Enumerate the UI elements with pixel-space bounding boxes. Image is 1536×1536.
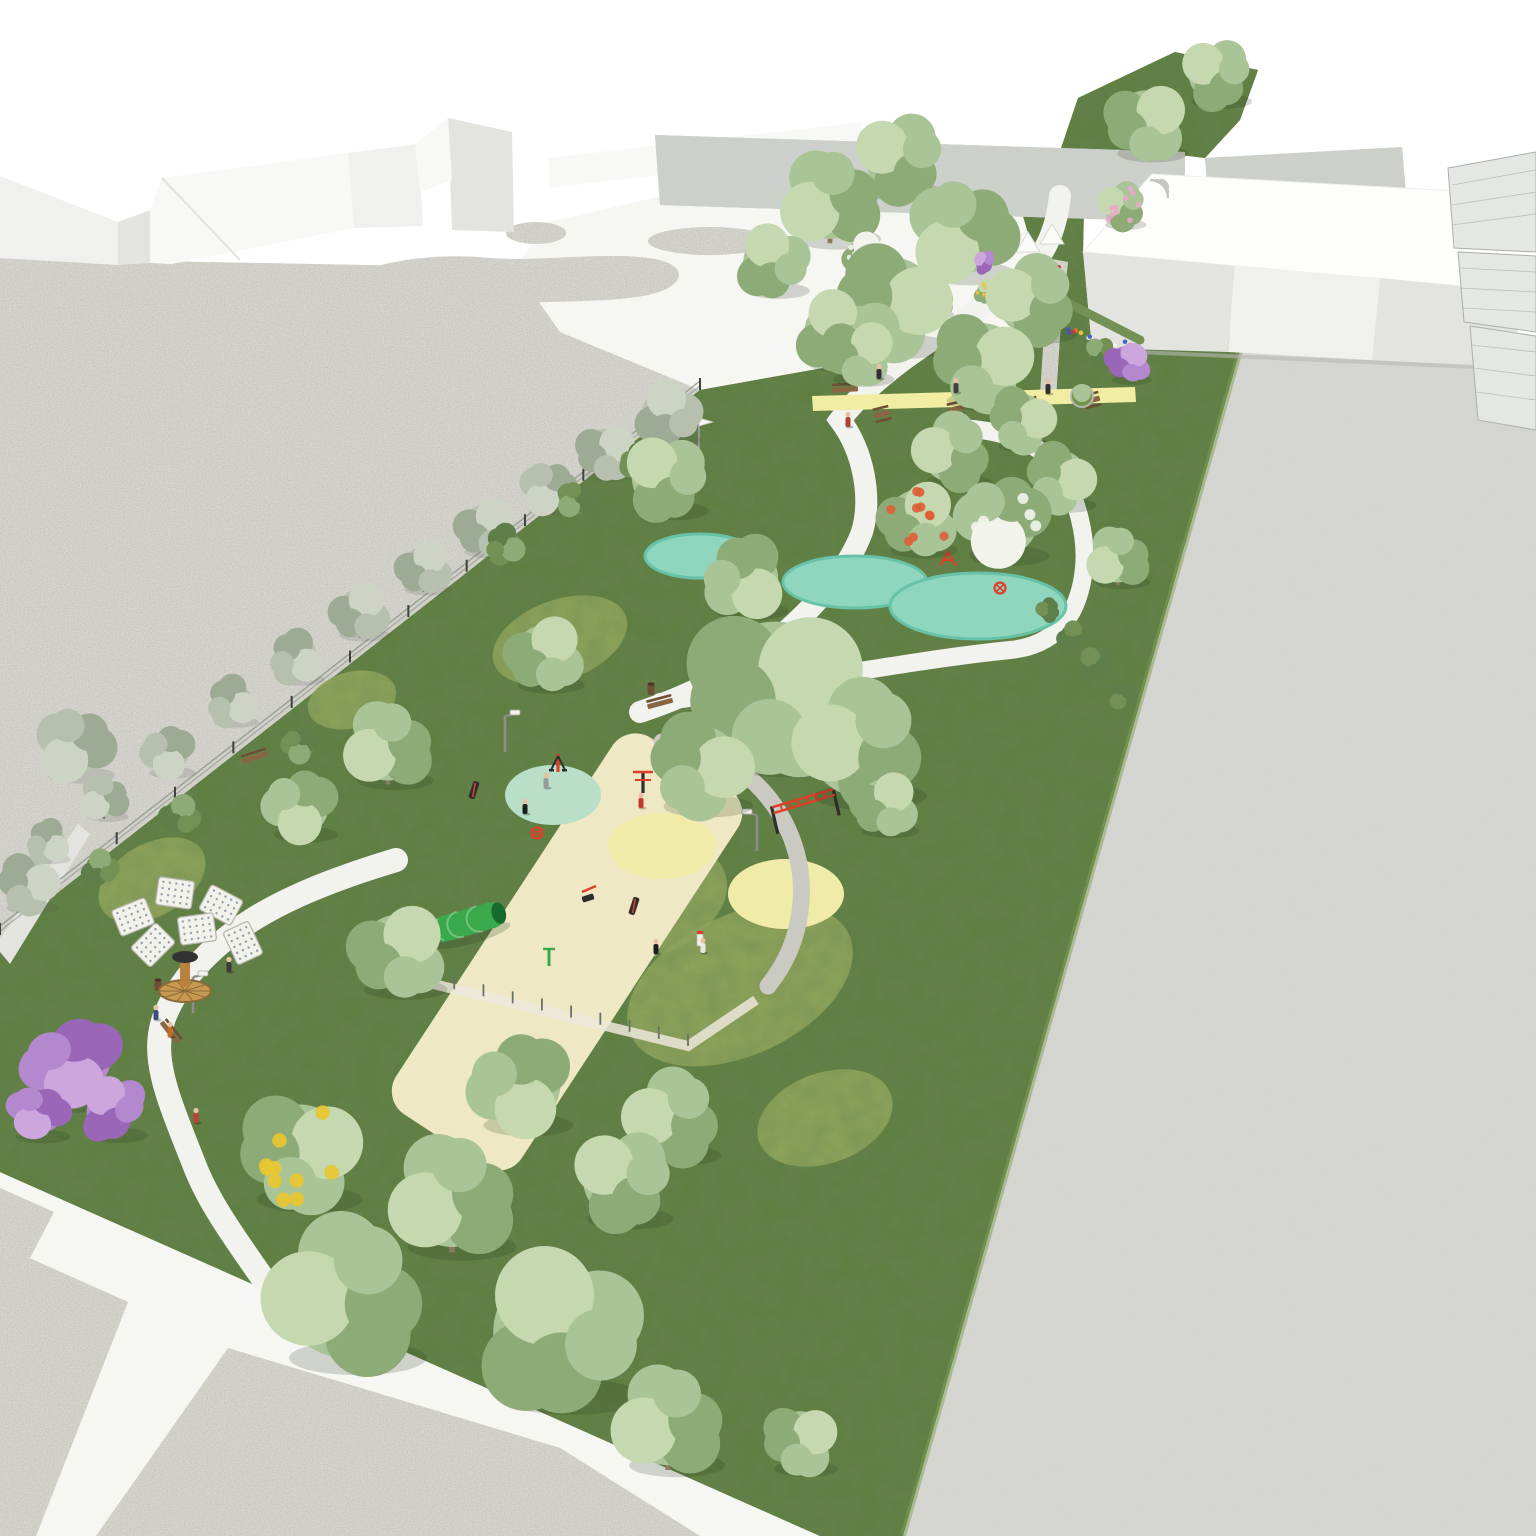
solar-panel-leaf [155,877,195,910]
person-body [1046,384,1051,394]
person-body [194,1113,199,1123]
person-head [193,1108,198,1113]
person-head [167,1022,172,1027]
fitness-circle-yellow [728,859,844,929]
round-tree-planter [1071,384,1093,407]
blossom-cluster [1127,186,1133,192]
blossom-cluster [315,1105,330,1120]
person-head [153,1005,158,1010]
planter-tree [1073,384,1091,402]
foot [549,769,554,772]
person-head [638,793,643,798]
foot [562,769,567,772]
blossom-cluster [1123,195,1129,201]
blossom-cluster [1127,217,1133,223]
person-body [639,798,644,808]
greenhouse-structure [1448,152,1536,252]
blossom-cluster [1109,205,1115,211]
blossom-cluster [982,282,986,286]
rung [798,800,799,805]
rung [789,803,790,808]
fitness-circle-mint [505,765,601,825]
blossom-cluster [1105,217,1111,223]
person-body [877,369,882,379]
person-body [154,1010,159,1020]
flower-dot [1079,330,1084,335]
person-body [227,962,232,972]
rung [807,798,808,803]
render-viewport [0,0,1536,1536]
blossom-cluster [267,1161,282,1176]
bin-body [648,684,655,695]
blossom-cluster [886,505,895,514]
flower-dot [1123,339,1128,344]
person-head [653,939,658,944]
blossom-cluster [925,511,934,520]
lamp-head [510,710,520,715]
blossom-cluster [976,291,980,295]
person-head [1045,379,1050,384]
person-head [543,773,548,778]
blossom-cluster [290,1192,305,1207]
lamp-head [198,971,208,976]
new-hall-front-panel [1228,266,1380,360]
blossom-cluster [992,535,1003,546]
blossom-cluster [1136,202,1142,208]
litter-bin [648,682,655,695]
blossom-cluster [865,239,870,244]
blossom-cluster [939,532,948,541]
blossom-cluster [915,488,924,497]
plaza-gravel-island [545,284,625,300]
blossom-cluster [272,1133,287,1148]
blossom-cluster [909,532,918,541]
blossom-cluster [267,1174,282,1189]
blossom-cluster [1024,509,1035,520]
blossom-cluster [324,1165,339,1180]
panel [177,913,217,946]
person-head [876,364,881,369]
person-body [654,944,659,954]
person-body [846,417,851,427]
person-body [701,943,706,953]
blossom-cluster [916,502,925,511]
blossom-cluster [289,1173,304,1188]
blossom-cluster [1005,532,1016,543]
bin-top [648,682,655,685]
person-body [168,1027,173,1037]
person-head [845,412,850,417]
person-head [226,957,231,962]
panel [155,877,195,910]
greenhouse-structure [1458,252,1536,332]
cap [697,931,703,934]
park-aerial-render [0,0,1536,1536]
plaza-gravel-island [506,222,566,244]
post [641,772,644,793]
flower-dot [1087,334,1092,339]
blossom-cluster [1004,543,1015,554]
rung [781,805,782,810]
blossom-cluster [1017,493,1028,504]
new-hall-front-panel [1083,252,1235,352]
canopy-blob [1031,265,1069,303]
bin-top [155,978,162,981]
person-body [544,778,549,788]
blossom-cluster [978,516,989,527]
blossom-cluster [982,528,993,539]
greenhouse-structure [1470,326,1536,430]
person-body [954,383,959,393]
fitness-circle-yellow [608,813,716,879]
blossom-cluster [848,245,853,250]
context-building-west-slab [348,144,423,228]
person-head [522,799,527,804]
blossom-cluster [1030,520,1041,531]
context-building-tower [448,118,514,232]
blossom-cluster [276,1192,291,1207]
person-head [953,378,958,383]
person-body [523,804,528,814]
person-head [700,938,705,943]
sculpture-cap [172,951,198,963]
solar-panel-leaf [177,913,217,946]
